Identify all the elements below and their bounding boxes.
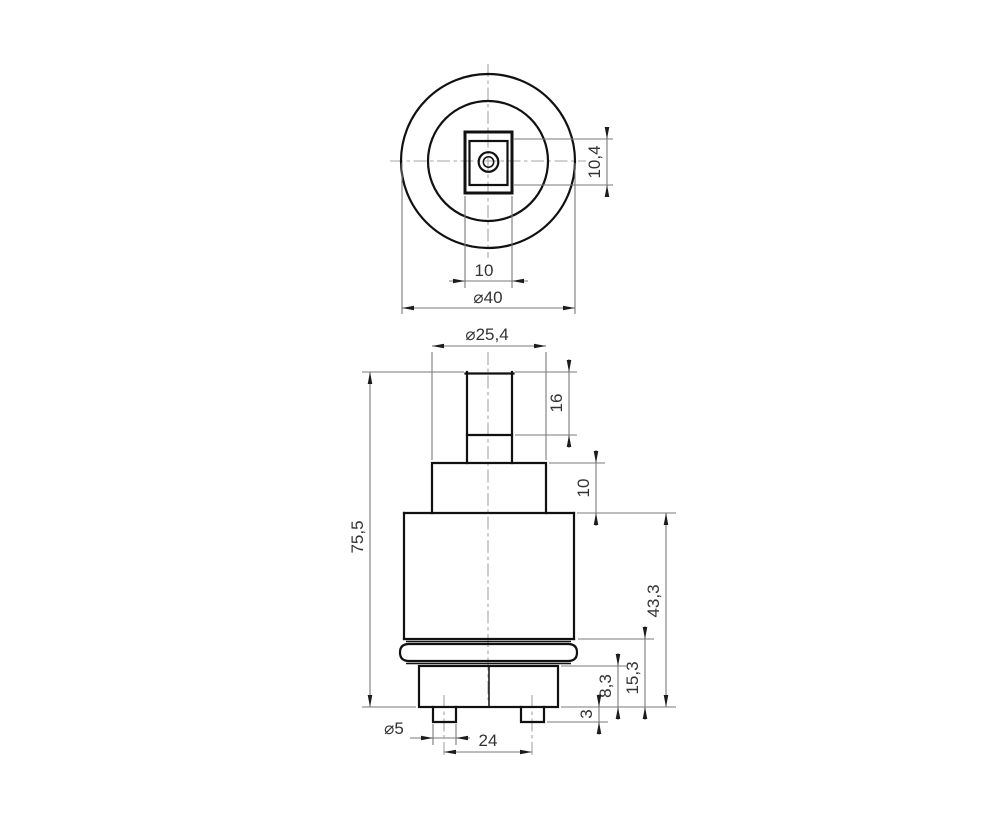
dim-pin-diameter: ⌀5 (384, 719, 470, 745)
dim-neck-height: 10 (549, 450, 605, 526)
dim-label-stem-height: 16 (547, 394, 566, 413)
top-view (390, 64, 586, 258)
dim-overall-height: 75,5 (348, 372, 464, 707)
arrowhead (534, 344, 546, 349)
arrowhead (664, 695, 669, 707)
arrowhead (520, 750, 532, 755)
arrowhead (643, 627, 648, 639)
dim-label-pin-spacing: 24 (479, 731, 498, 750)
drawing-sheet: 10,4 10 ⌀40 (0, 0, 1000, 819)
arrowhead (567, 435, 572, 447)
arrowhead (432, 344, 444, 349)
arrowhead (402, 306, 414, 311)
dim-pin-spacing: 24 (444, 731, 532, 754)
dim-lower-height: 15,3 (578, 626, 654, 720)
dim-label-square-height: 10,4 (585, 145, 604, 178)
dim-label-neck-height: 10 (574, 479, 593, 498)
arrowhead (444, 750, 456, 755)
dim-label-collar-diameter: ⌀25,4 (465, 325, 508, 344)
dim-label-square-width: 10 (475, 261, 494, 280)
dim-label-pin-diameter: ⌀5 (384, 719, 404, 738)
technical-drawing: 10,4 10 ⌀40 (0, 0, 1000, 819)
arrowhead (421, 736, 433, 741)
arrowhead (368, 372, 373, 384)
arrowhead (594, 513, 599, 525)
dim-pin-length: 3 (547, 694, 608, 735)
arrowhead (512, 279, 524, 284)
arrowhead (563, 306, 575, 311)
dim-collar-diameter: ⌀25,4 (432, 325, 546, 460)
arrowhead (643, 707, 648, 719)
dim-label-pin-length: 3 (577, 709, 596, 718)
collar-outline (432, 463, 546, 513)
arrowhead (605, 185, 610, 197)
arrowhead (456, 736, 468, 741)
arrowhead (616, 654, 621, 666)
arrowhead (597, 695, 602, 707)
arrowhead (368, 695, 373, 707)
arrowhead (664, 513, 669, 525)
arrowhead (567, 360, 572, 372)
arrowhead (605, 127, 610, 139)
arrowhead (597, 722, 602, 734)
arrowhead (594, 451, 599, 463)
dim-square-height: 10,4 (514, 127, 613, 197)
dim-label-body-height: 43,3 (644, 584, 663, 617)
arrowhead (453, 279, 465, 284)
dim-label-outer-diameter: ⌀40 (473, 288, 502, 307)
dim-label-overall-height: 75,5 (348, 520, 367, 553)
arrowhead (616, 707, 621, 719)
